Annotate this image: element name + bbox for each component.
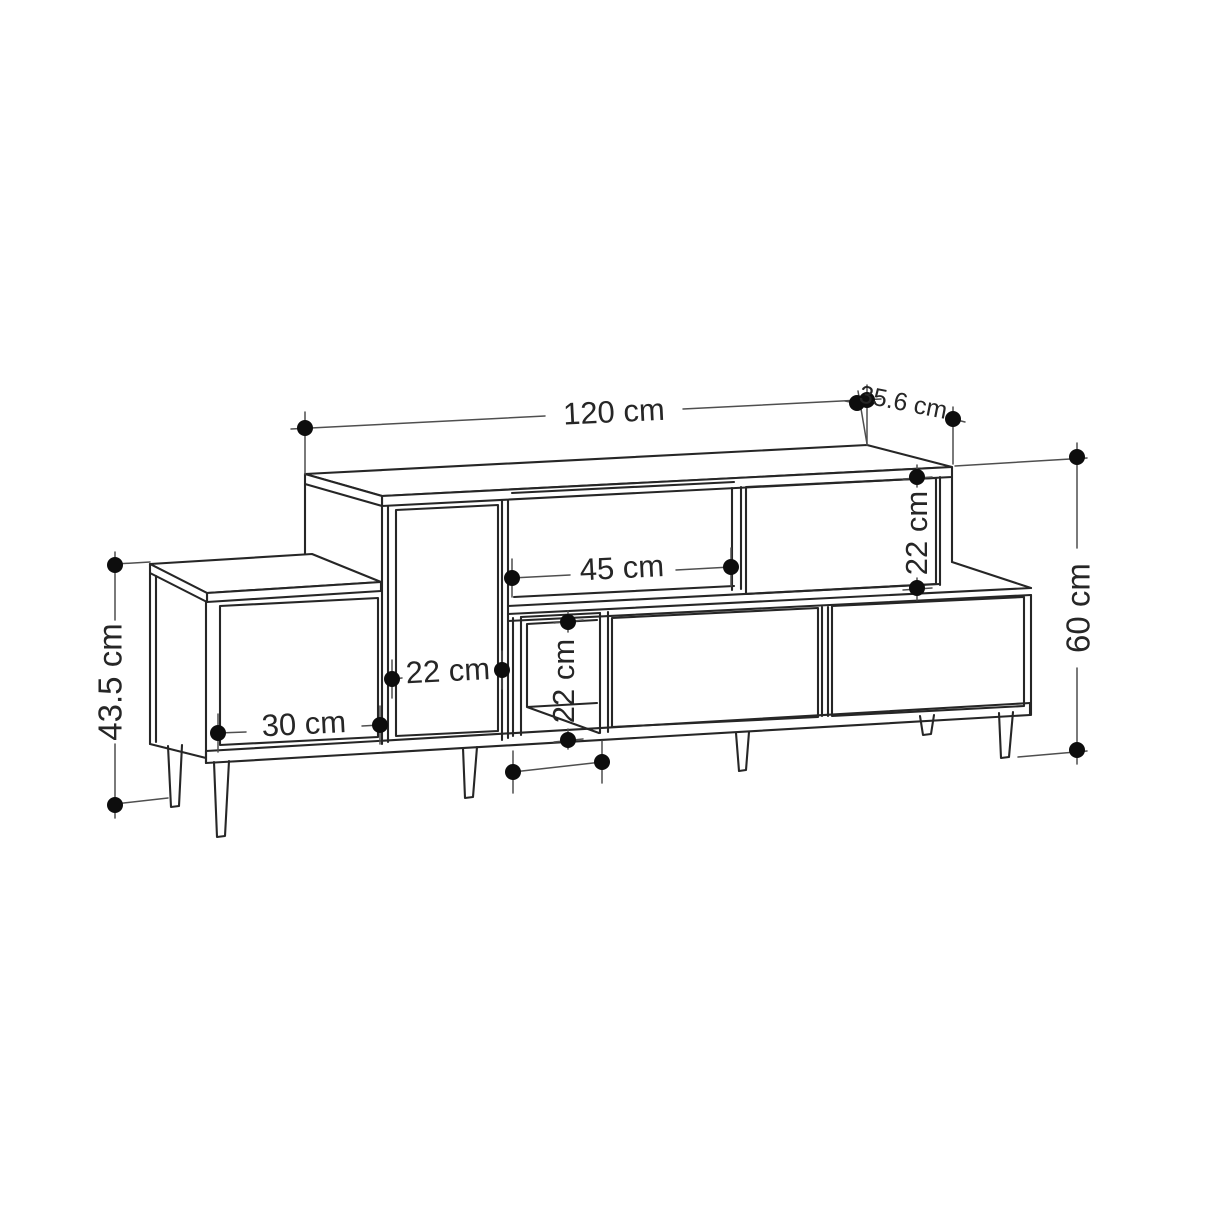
top-board [305,445,952,506]
leg [463,747,477,798]
tall-door-right-edges [502,500,508,740]
dim-label-lower-compartment-height: 22 cm [546,639,581,723]
dim-endpoint-dot [210,725,226,741]
dim-label-left-section-height: 43.5 cm [92,623,129,740]
dim-label-total-height: 60 cm [1060,563,1097,653]
dim-endpoint-dot [723,559,739,575]
upper-right-panel-edges [940,477,952,585]
tall-center-door [396,505,498,736]
dim-endpoint-dot [1069,449,1085,465]
dim-label-middle-shelf-width: 45 cm [579,548,665,587]
small-compartment-left-wall [513,617,521,736]
dim-center-door-width: 22 cm [384,651,510,698]
upper-section [305,477,952,744]
dim-endpoint-dot [297,420,313,436]
leg [214,761,229,837]
dim-middle-shelf-width: 45 cm [504,548,739,597]
leg [736,732,749,771]
dim-label-left-door-width: 30 cm [261,704,347,743]
diagram-page: 120 cm 35.6 cm 22 cm 45 cm 60 cm [0,0,1214,1214]
leg [920,715,934,735]
dim-endpoint-dot [909,580,925,596]
dim-endpoint-dot [107,797,123,813]
dim-endpoint-dot [560,732,576,748]
dim-label-top-width: 120 cm [562,392,665,432]
dim-endpoint-dot [372,717,388,733]
dim-endpoint-dot [505,764,521,780]
leg [999,712,1013,758]
dim-endpoint-dot [107,557,123,573]
dim-label-center-door-width: 22 cm [405,651,491,690]
dim-endpoint-dot [909,469,925,485]
lower-door-right [832,597,1024,716]
small-compartment-right-wall [600,612,608,733]
dim-line [513,762,602,772]
dim-endpoint-dot [560,614,576,630]
dim-upper-right-height: 22 cm [899,465,934,600]
upper-left-panel-edges [382,506,388,744]
lower-door-gap [822,607,828,716]
dim-label-top-depth: 35.6 cm [857,380,950,424]
lower-door-left [612,608,818,727]
dim-label-upper-right-height: 22 cm [899,491,934,575]
cabinet-back-left-edge [150,573,156,744]
lower-top-board-bottom [508,595,1031,621]
dim-unlabeled-bottom [505,741,610,793]
dim-endpoint-dot [594,754,610,770]
dim-endpoint-dot [384,671,400,687]
dim-endpoint-dot [504,570,520,586]
dim-endpoint-dot [494,662,510,678]
dim-lower-compartment-height: 22 cm [546,611,583,749]
dim-endpoint-dot [945,411,961,427]
dimension-diagram: 120 cm 35.6 cm 22 cm 45 cm 60 cm [0,0,1214,1214]
leg [168,745,182,807]
lower-top-right-depth-edge [952,562,1031,588]
dim-endpoint-dot [1069,742,1085,758]
